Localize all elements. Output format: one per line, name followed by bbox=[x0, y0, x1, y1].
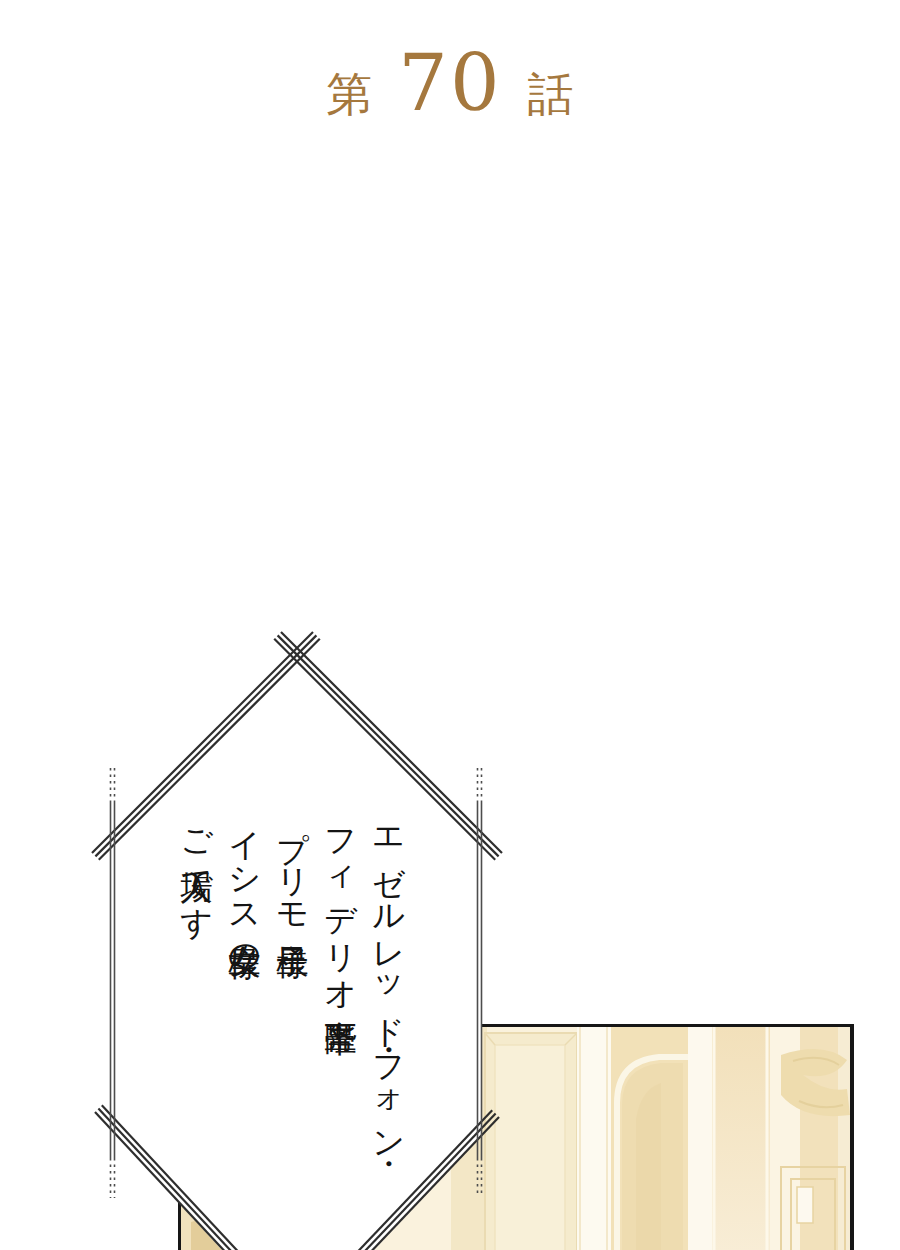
dialogue-column-5: ご入場です bbox=[180, 808, 214, 1148]
dialogue-text: エゼルレッド・フォン・ フィデリオ皇帝陛下 プリモ皇子様 イシス皇女様の ご入場… bbox=[180, 808, 406, 1148]
dialogue-column-1: エゼルレッド・フォン・ bbox=[372, 808, 406, 1148]
manga-page: 第 70 話 bbox=[0, 0, 900, 1250]
dialogue-column-2: フィデリオ皇帝陛下 bbox=[324, 808, 358, 1148]
speech-bubble bbox=[0, 0, 900, 1250]
dialogue-column-3: プリモ皇子様 bbox=[276, 808, 310, 1148]
dialogue-column-4: イシス皇女様の bbox=[228, 808, 262, 1148]
